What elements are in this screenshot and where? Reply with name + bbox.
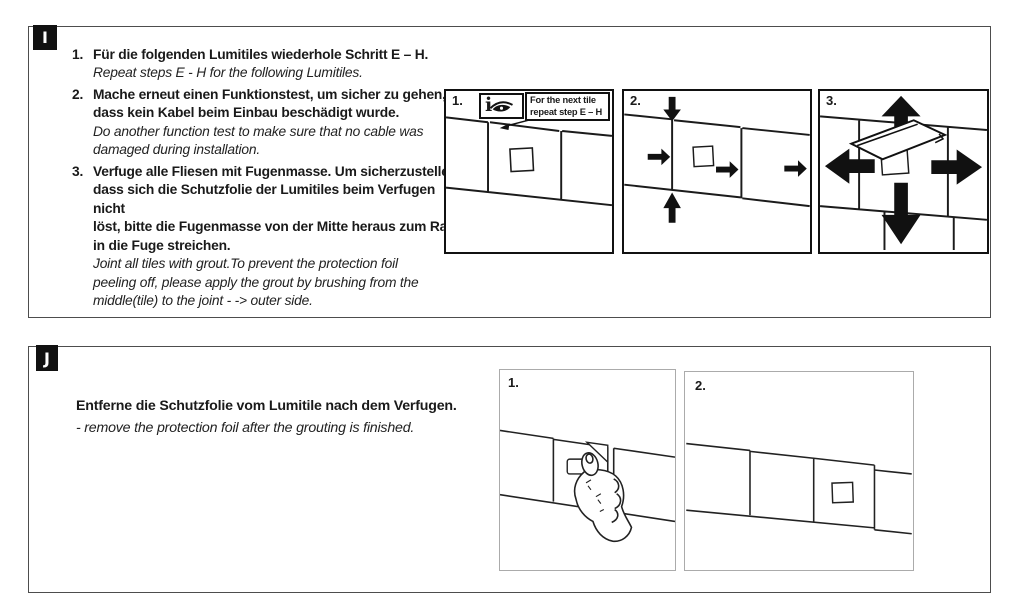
section-j: J Entferne die Schutzfolie vom Lumitile … [28,346,991,593]
diagram-panel-i1: 1. i For the next tile repeat step E – H [444,89,614,254]
section-i-instructions: 1. Für die folgenden Lumitiles wiederhol… [72,46,468,314]
lumitile-square-icon [693,146,714,167]
step-number: 1. [72,46,93,83]
tile-wall-drawing [820,91,987,252]
german-text: Entferne die Schutzfolie vom Lumitile na… [76,395,457,417]
tile-wall-drawing [624,91,810,252]
hand-peeling-foil-icon [575,451,632,541]
step-number: 3. [72,163,93,311]
english-text: - remove the protection foil after the g… [76,417,457,439]
german-text: Für die folgenden Lumitiles wiederhole S… [93,46,428,64]
step-body: Verfuge alle Fliesen mit Fugenmasse. Um … [93,163,468,311]
arrow-right-icon [716,161,738,178]
info-eye-icon-box: i [479,93,524,119]
arrow-up-icon [663,192,681,222]
english-text: Joint all tiles with grout.To prevent th… [93,255,468,310]
manual-page: I 1. Für die folgenden Lumitiles wiederh… [0,0,1024,603]
panel-step-number: 1. [452,93,463,108]
block-arrow-left-icon [825,149,875,184]
panel-step-number: 2. [695,378,706,393]
diagram-panel-j2: 2. [684,371,914,571]
english-text: Do another function test to make sure th… [93,123,446,160]
arrow-right-icon [648,149,670,166]
english-text: Repeat steps E - H for the following Lum… [93,64,428,82]
arrow-down-icon [663,97,681,121]
section-j-label: J [36,345,58,371]
panel-step-number: 3. [826,93,837,108]
step-body: Mache erneut einen Funktionstest, um sic… [93,86,446,160]
arrow-right-icon [784,160,806,177]
eye-icon [481,95,522,117]
callout-line-1: For the next tile [530,95,608,107]
block-arrow-right-icon [931,150,982,185]
instruction-step-2: 2. Mache erneut einen Funktionstest, um … [72,86,468,160]
step-number: 2. [72,86,93,160]
lumitile-square-icon [510,148,534,172]
panel-step-number: 2. [630,93,641,108]
lumitile-square-icon [832,482,853,502]
tile-wall-drawing [500,370,675,570]
panel-step-number: 1. [508,375,519,390]
diagram-panel-i2: 2. [622,89,812,254]
tile-wall-drawing [685,372,913,570]
german-text: Verfuge alle Fliesen mit Fugenmasse. Um … [93,163,468,255]
section-j-instructions: Entferne die Schutzfolie vom Lumitile na… [76,395,457,439]
section-i-label: I [33,25,57,50]
german-text: Mache erneut einen Funktionstest, um sic… [93,86,446,123]
diagram-panel-i3: 3. [818,89,989,254]
callout-note: For the next tile repeat step E – H [525,92,610,121]
instruction-step-3: 3. Verfuge alle Fliesen mit Fugenmasse. … [72,163,468,311]
diagram-panel-j1: 1. [499,369,676,571]
section-i: I 1. Für die folgenden Lumitiles wiederh… [28,26,991,318]
step-body: Für die folgenden Lumitiles wiederhole S… [93,46,428,83]
callout-line-2: repeat step E – H [530,107,608,119]
instruction-step-1: 1. Für die folgenden Lumitiles wiederhol… [72,46,468,83]
